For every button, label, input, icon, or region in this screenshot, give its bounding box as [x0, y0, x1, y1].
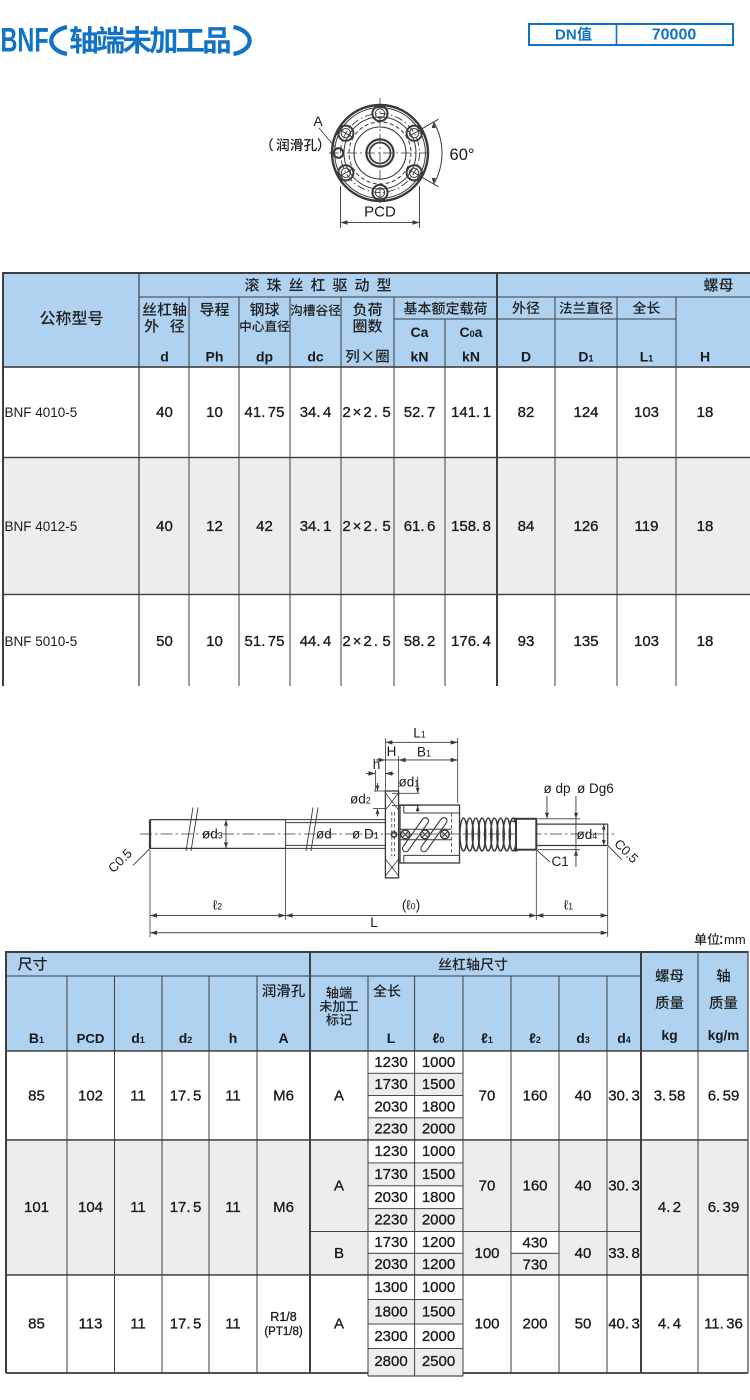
svg-text:2800: 2800: [374, 1353, 407, 1370]
svg-text:A: A: [334, 1178, 344, 1195]
svg-text:1200: 1200: [422, 1256, 455, 1273]
svg-text:BNF 5010-5: BNF 5010-5: [5, 634, 78, 649]
svg-text:50: 50: [156, 633, 173, 650]
svg-text:70: 70: [479, 1178, 496, 1195]
svg-text:51.75: 51.75: [245, 633, 285, 650]
svg-text:1800: 1800: [422, 1098, 455, 1115]
svg-text:119: 119: [635, 518, 659, 535]
svg-text:H: H: [700, 349, 710, 365]
svg-text:730: 730: [522, 1257, 547, 1274]
svg-text:2×2.5: 2×2.5: [342, 404, 392, 421]
svg-text:40: 40: [575, 1178, 592, 1195]
svg-text:17.5: 17.5: [170, 1316, 202, 1333]
svg-text:85: 85: [28, 1088, 45, 1105]
svg-text:11: 11: [130, 1088, 146, 1105]
svg-text:C1: C1: [552, 854, 569, 869]
svg-text:70: 70: [479, 1088, 496, 1105]
svg-text:1500: 1500: [422, 1166, 455, 1183]
svg-text:18: 18: [697, 404, 714, 421]
svg-text:D: D: [521, 349, 531, 365]
svg-text:102: 102: [78, 1088, 103, 1105]
svg-text:h: h: [229, 1030, 238, 1046]
svg-text:34.1: 34.1: [300, 518, 332, 535]
svg-text:33.8: 33.8: [608, 1245, 640, 1262]
svg-text:11: 11: [225, 1088, 241, 1105]
svg-text:2230: 2230: [374, 1121, 407, 1138]
svg-text:113: 113: [79, 1316, 103, 1333]
svg-text:6.39: 6.39: [708, 1199, 740, 1216]
svg-text:12: 12: [206, 518, 223, 535]
svg-text:1730: 1730: [374, 1166, 407, 1183]
svg-text:A: A: [313, 113, 323, 129]
svg-text:2300: 2300: [374, 1328, 407, 1345]
svg-text:1300: 1300: [374, 1279, 407, 1296]
svg-text:4.4: 4.4: [658, 1316, 681, 1333]
svg-text:BNF 4010-5: BNF 4010-5: [5, 405, 78, 420]
svg-text:Ca: Ca: [411, 324, 429, 340]
svg-text:M6: M6: [273, 1088, 294, 1105]
svg-text:kg: kg: [661, 1027, 677, 1043]
svg-text:1000: 1000: [422, 1279, 455, 1296]
svg-text:(PT1/8): (PT1/8): [264, 1326, 303, 1338]
svg-text:2000: 2000: [422, 1121, 455, 1138]
svg-text:60°: 60°: [450, 146, 475, 164]
svg-text:2000: 2000: [422, 1212, 455, 1229]
svg-text:11: 11: [130, 1316, 146, 1333]
svg-text:85: 85: [28, 1316, 45, 1333]
svg-text:10: 10: [206, 633, 223, 650]
svg-text:176.4: 176.4: [451, 633, 491, 650]
svg-text:30.3: 30.3: [608, 1178, 640, 1195]
svg-text:2030: 2030: [374, 1189, 407, 1206]
svg-text:52.7: 52.7: [404, 404, 436, 421]
svg-text:58.2: 58.2: [404, 633, 436, 650]
svg-text:DN: DN: [555, 27, 577, 44]
svg-text:17.5: 17.5: [170, 1199, 202, 1216]
svg-text:kN: kN: [411, 349, 429, 365]
svg-text:dc: dc: [307, 349, 324, 365]
svg-text:PCD: PCD: [77, 1031, 105, 1046]
svg-text:82: 82: [518, 404, 535, 421]
svg-text:2030: 2030: [374, 1098, 407, 1115]
svg-text:126: 126: [573, 518, 598, 535]
svg-text:1200: 1200: [422, 1234, 455, 1251]
svg-text:2×2.5: 2×2.5: [342, 518, 392, 535]
svg-text:70000: 70000: [652, 27, 697, 44]
svg-text:3.58: 3.58: [654, 1088, 686, 1105]
svg-text:1800: 1800: [422, 1189, 455, 1206]
svg-text:2500: 2500: [422, 1353, 455, 1370]
svg-text:135: 135: [573, 633, 598, 650]
svg-text:kN: kN: [462, 349, 480, 365]
svg-text:93: 93: [518, 633, 535, 650]
svg-text:11.36: 11.36: [704, 1316, 743, 1333]
svg-text:100: 100: [474, 1316, 499, 1333]
svg-text:101: 101: [24, 1199, 49, 1216]
svg-text:B: B: [334, 1245, 344, 1262]
svg-text:103: 103: [634, 404, 659, 421]
svg-text:18: 18: [697, 518, 714, 535]
svg-text:2030: 2030: [374, 1256, 407, 1273]
svg-text:6.59: 6.59: [708, 1088, 740, 1105]
svg-text:Ph: Ph: [206, 349, 224, 365]
svg-text:103: 103: [634, 633, 659, 650]
svg-text:160: 160: [522, 1178, 547, 1195]
svg-text:141.1: 141.1: [451, 404, 491, 421]
svg-text:ø Dg6: ø Dg6: [577, 781, 614, 796]
svg-text:42: 42: [256, 518, 273, 535]
svg-text:BNF 4012-5: BNF 4012-5: [5, 519, 78, 534]
svg-text:H: H: [387, 744, 397, 759]
svg-text:dp: dp: [256, 349, 273, 365]
svg-text:1730: 1730: [374, 1076, 407, 1093]
svg-text:100: 100: [474, 1245, 499, 1262]
svg-text:PCD: PCD: [364, 204, 396, 221]
svg-text:124: 124: [573, 404, 598, 421]
svg-text:A: A: [334, 1316, 344, 1333]
svg-text:ø dp: ø dp: [544, 781, 571, 796]
svg-text:44.4: 44.4: [300, 633, 332, 650]
svg-text:30.3: 30.3: [608, 1088, 640, 1105]
svg-text:40: 40: [575, 1088, 592, 1105]
svg-text:17.5: 17.5: [170, 1088, 202, 1105]
svg-text:h: h: [373, 757, 381, 772]
svg-text:L: L: [370, 915, 378, 930]
svg-text:1230: 1230: [374, 1054, 407, 1071]
svg-text:2230: 2230: [374, 1212, 407, 1229]
svg-text:A: A: [278, 1030, 288, 1046]
svg-text:4.2: 4.2: [658, 1199, 681, 1216]
svg-text:104: 104: [78, 1199, 103, 1216]
svg-text:11: 11: [130, 1199, 146, 1216]
svg-text:L: L: [387, 1030, 396, 1046]
svg-text:1730: 1730: [374, 1234, 407, 1251]
svg-text:40.3: 40.3: [608, 1316, 640, 1333]
svg-text:160: 160: [522, 1088, 547, 1105]
svg-text:2×2.5: 2×2.5: [342, 633, 392, 650]
svg-text:11: 11: [225, 1199, 241, 1216]
svg-text:10: 10: [206, 404, 223, 421]
svg-text:A: A: [334, 1088, 344, 1105]
svg-text:1500: 1500: [422, 1303, 455, 1320]
svg-text:d: d: [160, 349, 169, 365]
svg-text:40: 40: [156, 404, 173, 421]
svg-text:ød: ød: [316, 827, 332, 842]
svg-text:M6: M6: [273, 1199, 294, 1216]
svg-text:mm: mm: [724, 932, 746, 947]
svg-text:61.6: 61.6: [404, 518, 436, 535]
svg-text:200: 200: [522, 1316, 547, 1333]
svg-text:158.8: 158.8: [451, 518, 491, 535]
svg-text:1800: 1800: [374, 1303, 407, 1320]
svg-text:kg/m: kg/m: [708, 1028, 740, 1043]
svg-text:1500: 1500: [422, 1076, 455, 1093]
svg-text:84: 84: [518, 518, 535, 535]
svg-text:2000: 2000: [422, 1328, 455, 1345]
svg-text:40: 40: [156, 518, 173, 535]
svg-text:34.4: 34.4: [300, 404, 332, 421]
svg-text:1230: 1230: [374, 1143, 407, 1160]
svg-text:18: 18: [697, 633, 714, 650]
svg-text:1000: 1000: [422, 1143, 455, 1160]
svg-text:R1/8: R1/8: [270, 1310, 296, 1324]
svg-text:11: 11: [225, 1316, 241, 1333]
svg-text:40: 40: [575, 1245, 592, 1262]
svg-text:50: 50: [575, 1316, 592, 1333]
svg-text:41.75: 41.75: [245, 404, 285, 421]
svg-text:BNF: BNF: [1, 22, 49, 59]
svg-text:1000: 1000: [422, 1054, 455, 1071]
svg-text:430: 430: [522, 1235, 547, 1252]
